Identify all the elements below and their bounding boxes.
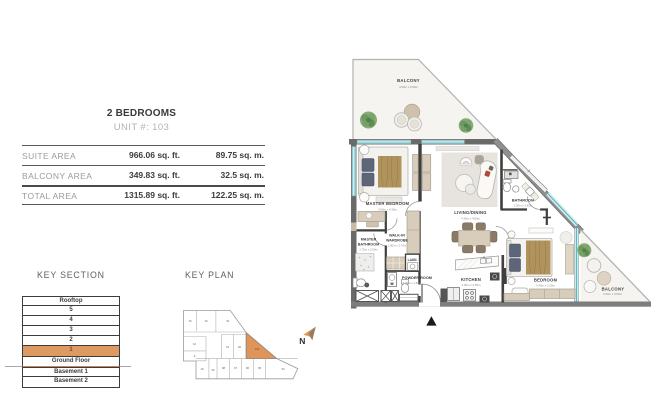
svg-text:95: 95 xyxy=(258,366,262,370)
svg-text:1.70m x 1.50m: 1.70m x 1.50m xyxy=(403,281,422,285)
svg-text:BALCONY: BALCONY xyxy=(602,287,625,292)
svg-text:MASTER BEDROOM: MASTER BEDROOM xyxy=(366,201,410,206)
svg-text:POWDER ROOM: POWDER ROOM xyxy=(402,276,432,280)
svg-text:15: 15 xyxy=(188,319,192,323)
svg-text:51: 51 xyxy=(226,319,230,323)
svg-text:97: 97 xyxy=(234,366,238,370)
svg-text:1.80m x 1.70m: 1.80m x 1.70m xyxy=(388,243,407,247)
svg-text:94: 94 xyxy=(281,367,285,371)
svg-text:92: 92 xyxy=(238,345,242,349)
svg-text:LAUN.: LAUN. xyxy=(408,258,418,262)
svg-text:10: 10 xyxy=(193,342,197,346)
svg-text:BALCONY: BALCONY xyxy=(397,78,420,83)
svg-text:BATHROOM: BATHROOM xyxy=(512,198,535,203)
svg-text:3.60m x 4.30m: 3.60m x 4.30m xyxy=(378,208,398,212)
svg-text:1.70m x 2.60m: 1.70m x 2.60m xyxy=(359,247,378,251)
svg-text:98: 98 xyxy=(222,366,226,370)
svg-text:91: 91 xyxy=(226,345,230,349)
svg-text:MASTER: MASTER xyxy=(361,238,377,242)
svg-text:BATHROOM: BATHROOM xyxy=(358,242,379,246)
svg-text:4.30m x 2.60m: 4.30m x 2.60m xyxy=(461,283,481,287)
svg-text:WALK-IN: WALK-IN xyxy=(389,234,405,238)
svg-text:3.00m x 3.50m: 3.00m x 3.50m xyxy=(603,292,623,296)
svg-text:20: 20 xyxy=(211,368,215,372)
svg-text:LIVING/DINING: LIVING/DINING xyxy=(454,210,486,215)
svg-text:2.50m x 2.40m: 2.50m x 2.40m xyxy=(514,204,533,208)
svg-text:4.50m x 6.90m: 4.50m x 6.90m xyxy=(399,85,419,89)
svg-text:16: 16 xyxy=(204,319,208,323)
svg-text:N: N xyxy=(299,336,305,346)
svg-text:KITCHEN: KITCHEN xyxy=(461,277,481,282)
svg-text:BEDROOM: BEDROOM xyxy=(534,277,558,282)
svg-text:19: 19 xyxy=(200,367,204,371)
svg-text:3.40m x 3.20m: 3.40m x 3.20m xyxy=(536,283,556,287)
svg-text:4.30m x 4.60m: 4.30m x 4.60m xyxy=(461,217,481,221)
svg-text:WARDROBE: WARDROBE xyxy=(386,238,408,242)
svg-text:103: 103 xyxy=(255,347,260,351)
svg-text:96: 96 xyxy=(246,366,250,370)
